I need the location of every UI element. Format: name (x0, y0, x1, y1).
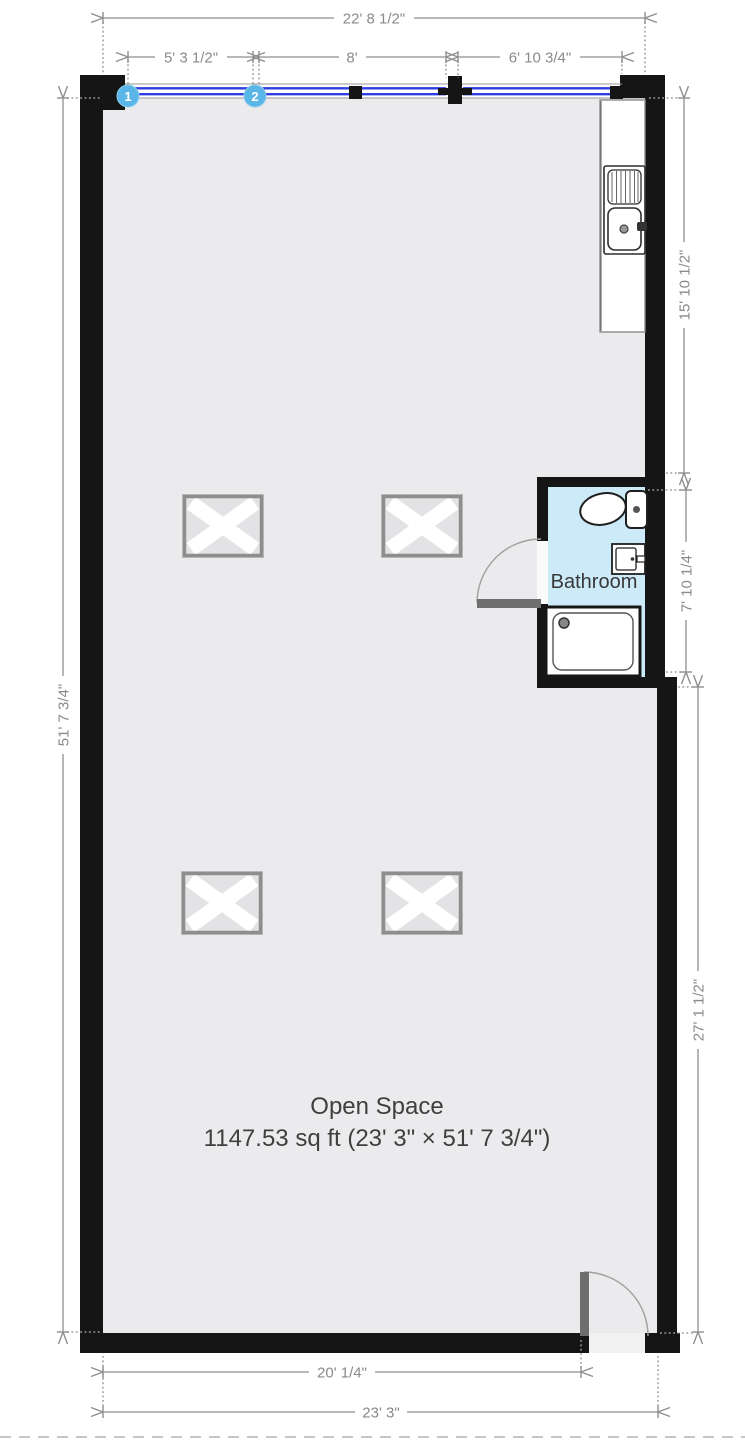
dim-label-top-total: 22' 8 1/2" (343, 10, 405, 27)
dim-bottom-inner: 20' 1/4" (103, 1363, 581, 1381)
bathroom-label[interactable]: Bathroom (551, 571, 638, 593)
ceiling-light-icon-1[interactable] (183, 495, 264, 558)
wall-bathroom-top[interactable] (537, 477, 647, 487)
dim-label-right-lower: 27' 1 1/2" (690, 979, 707, 1041)
dim-right-lower: 27' 1 1/2" (689, 687, 707, 1332)
wall-corner-top-right[interactable] (620, 75, 665, 98)
window-mullion-2 (610, 86, 623, 99)
window-1[interactable] (125, 88, 350, 94)
window-marker-1[interactable]: 1 (117, 85, 139, 107)
dim-window-3: 6' 10 3/4" (458, 48, 622, 66)
window-post-wing (438, 88, 472, 95)
dim-label-right-bathroom: 7' 10 1/4" (678, 550, 695, 612)
wall-bathroom-bottom[interactable] (537, 677, 677, 688)
window-marker-2-label: 2 (251, 89, 258, 104)
wall-right-lower[interactable] (657, 677, 677, 1353)
dim-window-2: 8' (259, 48, 446, 66)
dim-label-window-2: 8' (346, 49, 357, 66)
faucet-icon (637, 222, 647, 231)
window-3[interactable] (463, 88, 611, 94)
ceiling-light-icon-3[interactable] (182, 872, 263, 935)
dim-bottom-total: 23' 3" (103, 1403, 658, 1421)
dim-right-bathroom: 7' 10 1/4" (677, 490, 695, 672)
shower-icon[interactable] (546, 607, 640, 676)
wall-bathroom-left-upper[interactable] (537, 477, 548, 541)
bathroom-door-opening (537, 541, 548, 604)
open-space-area: 1147.53 sq ft (23' 3" × 51' 7 3/4") (204, 1125, 551, 1152)
entry-door-leaf[interactable] (580, 1272, 589, 1336)
ceiling-light-icon-4[interactable] (382, 872, 463, 935)
floor-plan-canvas: 22' 8 1/2" 5' 3 1/2" 8' 6' 10 3/4" 51' 7… (0, 0, 745, 1441)
ceiling-light-icon-2[interactable] (382, 495, 463, 558)
wall-left[interactable] (80, 75, 103, 1353)
dim-label-right-upper: 15' 10 1/2" (676, 250, 693, 321)
dim-label-bottom-total: 23' 3" (362, 1404, 399, 1421)
dim-window-1: 5' 3 1/2" (128, 48, 253, 66)
kitchen-sink-icon[interactable] (604, 166, 647, 254)
open-space-name: Open Space (310, 1093, 443, 1120)
bathroom-door-leaf[interactable] (477, 599, 541, 608)
dim-label-window-3: 6' 10 3/4" (509, 49, 571, 66)
wall-corner-bottom-right[interactable] (645, 1333, 680, 1353)
dim-label-left-total: 51' 7 3/4" (55, 684, 72, 746)
window-2[interactable] (362, 88, 446, 94)
wall-right-upper[interactable] (645, 98, 665, 677)
dim-top-total: 22' 8 1/2" (103, 9, 645, 27)
dim-label-bottom-inner: 20' 1/4" (317, 1364, 367, 1381)
dim-left-total: 51' 7 3/4" (54, 98, 72, 1332)
window-marker-2[interactable]: 2 (244, 85, 266, 107)
window-marker-1-label: 1 (124, 89, 131, 104)
dim-right-upper: 15' 10 1/2" (675, 98, 693, 473)
wall-bottom[interactable] (80, 1333, 589, 1353)
entry-door-opening (589, 1333, 645, 1353)
window-mullion-1 (349, 86, 362, 99)
dim-label-window-1: 5' 3 1/2" (164, 49, 218, 66)
bathroom-sink-icon[interactable] (612, 544, 645, 574)
